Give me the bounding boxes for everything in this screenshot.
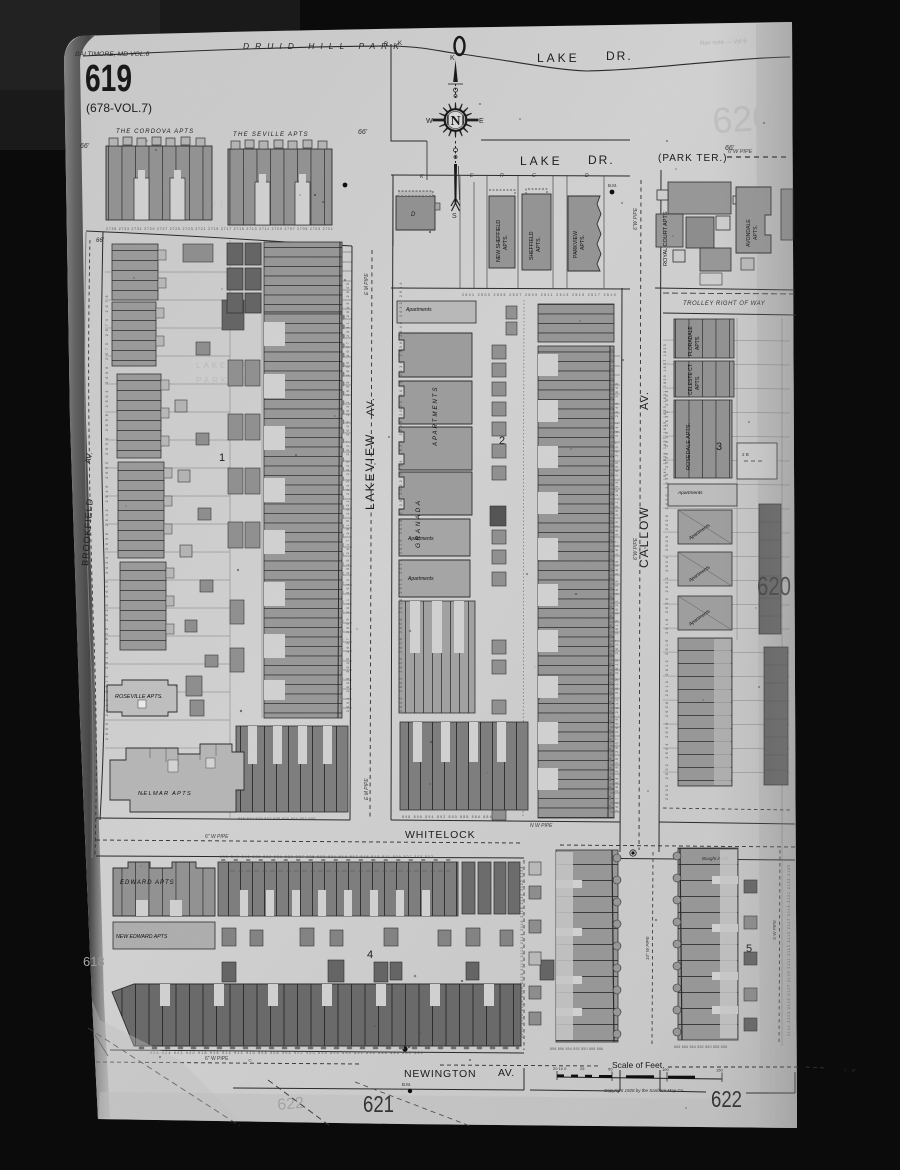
svg-text:6": 6": [852, 1068, 857, 1073]
svg-text:898 896 894 892 890 888 886: 898 896 894 892 890 888 886: [550, 1047, 603, 1051]
svg-text:868 866 864 862 860 858 856: 868 866 864 862 860 858 856: [674, 1045, 727, 1049]
